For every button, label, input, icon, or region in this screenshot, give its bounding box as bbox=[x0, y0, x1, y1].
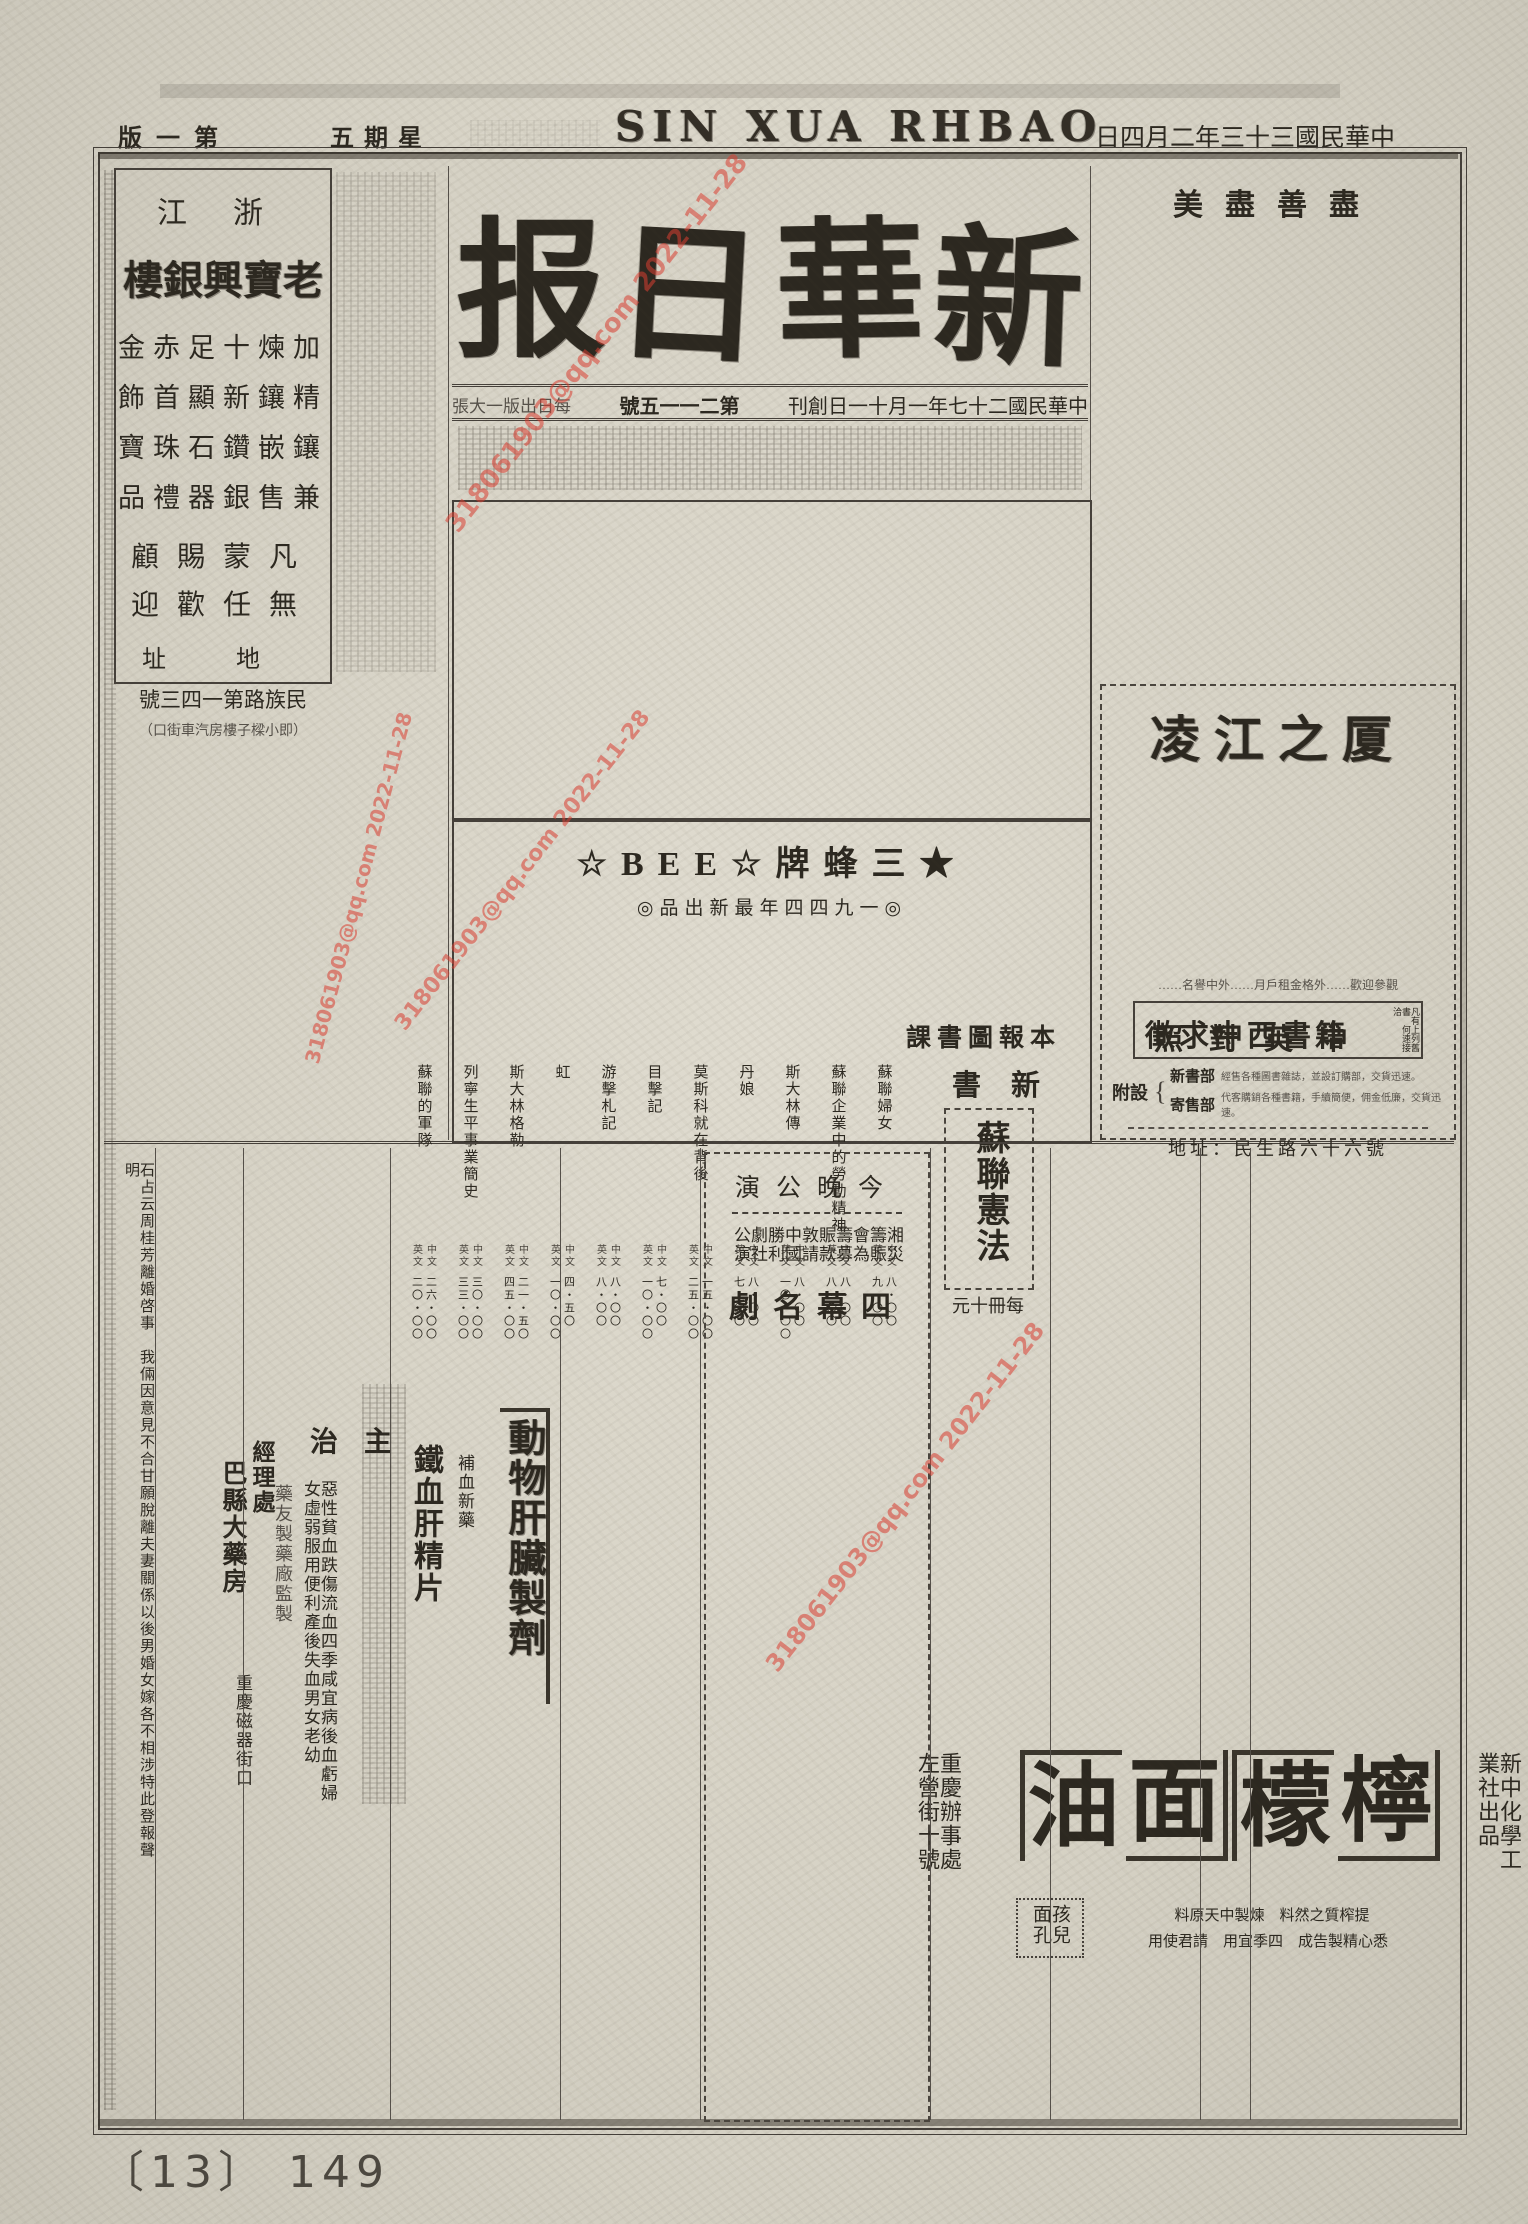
masthead-founding: 中華民國二十七年一月十一日創刊 bbox=[788, 390, 1088, 419]
mansion-title: 凌江之厦 bbox=[1102, 700, 1454, 772]
ad-shoe-polish: 盡善盡美 國貨至上！ 歡迎試用！保證滿意 雙星皮鞋油 顏色光潤第一！！耐用不乾第… bbox=[1095, 166, 1459, 678]
silver-welcome-2: 無任歡迎 bbox=[116, 583, 330, 623]
bookseek-dept1-desc: 經售各種圖書雜誌，並設訂購部，交貨迅速。 bbox=[1221, 1068, 1421, 1083]
play-kind: 四幕名劇 bbox=[706, 1282, 928, 1326]
masthead-title: 新華日报 bbox=[452, 172, 1088, 384]
scan-smudge-right bbox=[1462, 600, 1467, 1400]
bee-brand: ☆BEE☆牌蜂三★ bbox=[454, 836, 1090, 885]
bookseek-brace: { bbox=[1154, 1077, 1170, 1107]
masthead-rule-1 bbox=[452, 384, 1088, 387]
mansion-caption: ……名譽中外……月戶租金格外……歡迎參觀 bbox=[1102, 976, 1454, 993]
ad-zeiss: 德國製蔡司高倍顯微鏡出讓 接洽處 蜀德公司三樓 薛醫師診所 bbox=[1200, 1148, 1250, 2120]
ad-photo-studio: 欲求精美照片請向 金門照相館 定能使君滿意 地址：民族路一六六號 （即小樑子金十… bbox=[1050, 1148, 1200, 2120]
latin-masthead: SIN XUA RHBAO bbox=[615, 102, 1103, 151]
silver-welcome-1: 凡蒙賜顧 bbox=[116, 535, 330, 575]
bookseek-title: 徵求中西書籍 bbox=[1145, 1011, 1421, 1055]
ad-ginseng-shop: 北平 寶豐 參茸號 雪梨膏 中央衛生署化驗許可 名譽有百年 寄售北平同仁堂丸散膏… bbox=[155, 1148, 243, 2120]
silver-rows: 加煉十足赤金精鑲新顯首飾鑲嵌鑽石珠寶兼售銀器禮品 bbox=[116, 326, 330, 515]
bookseek-note: 凡有上列舊書 何速接洽 bbox=[1392, 1007, 1419, 1053]
bee-subtitle: ◎一九四四年最新出品◎ bbox=[454, 893, 1090, 920]
ad-bee-cream: ☆BEE☆牌蜂三★ ◎一九四四年最新出品◎ 新中化學工業社出品 檸檬面油 重慶辦… bbox=[452, 820, 1092, 1144]
play-tonight: 今晚公演 bbox=[732, 1168, 902, 1214]
silver-addr-label: 地址 bbox=[116, 639, 330, 674]
topbar-ghost-print bbox=[470, 120, 600, 146]
masthead-fine-print bbox=[458, 426, 1082, 490]
scan-smudge-top bbox=[160, 84, 1340, 98]
newspaper-scan-page: 第一版 星期五 SIN XUA RHBAO 中華民國三十三年二月四日 浙江 老寶… bbox=[0, 0, 1528, 2224]
polish-header: 盡善盡美 bbox=[1095, 180, 1459, 224]
masthead-char: 报 bbox=[452, 170, 610, 387]
silver-row: 精鑲新顯首飾 bbox=[116, 376, 330, 415]
silver-shop-name: 老寶興銀樓 bbox=[116, 248, 330, 306]
bookseek-dept1: 新書部 bbox=[1170, 1065, 1215, 1086]
silver-region: 浙江 bbox=[116, 188, 330, 232]
bookseek-dept2: 寄售部 bbox=[1170, 1094, 1215, 1115]
ad-soap: 理容用：銀光冷霜，銀光面油： 淨面用： 三八香皂 雙囍香皂 也是上海大興工業公司… bbox=[1250, 1148, 1462, 2120]
silver-row: 兼售銀器禮品 bbox=[116, 476, 330, 515]
divider-b5 bbox=[700, 1148, 701, 2120]
ad-book-dept: 本報圖書課 新書 蘇聯憲法 每冊十元 中英對照 蘇聯婦女 中文八・〇〇 英文九・… bbox=[452, 500, 1092, 820]
frame-top-smudge bbox=[98, 152, 1458, 159]
masthead-info-line: 中華民國二十七年一月十一日創刊 第二一一五號 每日出版一大張 bbox=[452, 390, 1088, 419]
ad-tiger-wine: 虎骨 木瓜酒 服之一日三杯 主治 拘攣半身不遂氣滯體弱筋絡腿痛 總經售 永光明藥… bbox=[560, 1148, 700, 2120]
masthead-issue: 第二一一五號 bbox=[620, 390, 740, 419]
masthead-char: 新 bbox=[926, 175, 1091, 397]
page-number: 〔13〕 149 bbox=[100, 2136, 390, 2200]
masthead-rule-2 bbox=[452, 418, 1088, 421]
silver-row: 加煉十足赤金 bbox=[116, 326, 330, 365]
ad-mansion: 凌江之厦 1,000- ……名譽中外……月戶租金格外……歡迎參觀 徵求中西書籍 … bbox=[1100, 684, 1456, 1140]
masthead-char: 華 bbox=[769, 168, 931, 388]
ad-play: 今晚公演 湘災籌賑會為籌募賑款敦請中國勝利劇社公演 四幕名劇 演出者：郭一予 編… bbox=[704, 1152, 930, 2122]
masthead-daily: 每日出版一大張 bbox=[452, 392, 571, 417]
ad-wedding: 結婚之家 欲想 節省開支。減少麻煩。秩序清順。表現輝煌。 民族路九十六號雲裳服裝… bbox=[930, 1148, 1050, 2120]
ad-silver-shop: 浙江 老寶興銀樓 加煉十足赤金精鑲新顯首飾鑲嵌鑽石珠寶兼售銀器禮品 凡蒙賜顧 無… bbox=[114, 168, 332, 684]
silver-row: 鑲嵌鑽石珠寶 bbox=[116, 426, 330, 465]
bookseek-dept2-desc: 代客購銷各種書籍，手續簡便，佣金低廉，交貨迅速。 bbox=[1221, 1089, 1444, 1119]
edition-label: 第一版 bbox=[118, 118, 232, 153]
ad-damp-enemy: 衛生署化驗許可 濕敵 四季咸宜皮膚病特效聖藥 演化製藥局出品 主治 濫腳奇癢癬癩… bbox=[243, 1148, 390, 2120]
masthead-char: 日 bbox=[606, 170, 775, 395]
ad-liver-pills: 動物肝臟製劑 補血新藥 鐵血肝精片 主治 惡性貧血跌傷流血四季咸宜病後血虧婦女虛… bbox=[104, 684, 448, 1140]
divider-left-column bbox=[448, 166, 449, 1140]
illegible-column bbox=[336, 172, 436, 672]
bookseek-depts: 附設 { 新書部經售各種圖書雜誌，並設訂購部，交貨迅速。 寄售部代客購銷各種書籍… bbox=[1112, 1065, 1444, 1119]
weekday-label: 星期五 bbox=[330, 118, 432, 153]
issue-date: 中華民國三十三年二月四日 bbox=[1095, 118, 1459, 154]
divorce-notice: 石占云周桂芳離婚啓事 我倆因意見不合甘願脫離夫妻關係以後男婚女嫁各不相涉特此登報… bbox=[103, 1162, 153, 1862]
bookseek-box: 徵求中西書籍 凡有上列舊書 何速接洽 bbox=[1133, 1001, 1423, 1059]
bookseek-attach-label: 附設 bbox=[1112, 1079, 1154, 1105]
ad-kidney-pills: 請購 ★腎虧遺精貧血健忘之唯一特效藥 何氏保腎丸 ★強腎固精補血益腦之四季滋補劑… bbox=[390, 1148, 560, 2120]
play-organizer: 湘災籌賑會為籌募賑款敦請中國勝利劇社公演 bbox=[732, 1226, 902, 1270]
bee-maker: 新中化學工業社出品 bbox=[1476, 1752, 1520, 1874]
